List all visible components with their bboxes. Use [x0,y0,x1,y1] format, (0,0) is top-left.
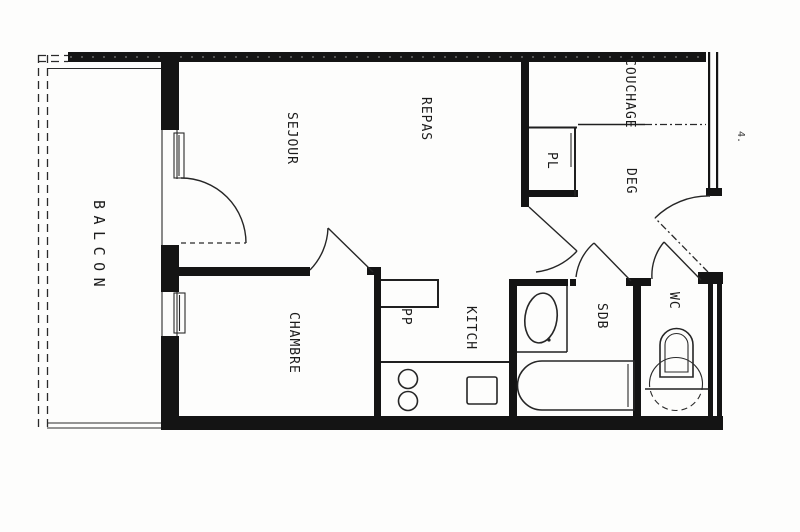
wall-right-upper-end-cap [706,188,722,196]
floor-plan-page: BALCON SEJOUR REPAS COUCHAGE PL DEG CHAM… [0,0,800,532]
wall-chambre-kitchen [374,267,381,422]
wc-door-swing-arc [652,242,664,279]
wall-right-lower-inner [717,282,722,422]
label-pp: PP [398,308,413,326]
sdb-fixtures [517,286,634,410]
kitchen-sink-bowl-2 [399,392,418,411]
wall-sdb-door-jamb [570,279,576,286]
wall-right-upper-outer-line [708,52,710,196]
label-repas: REPAS [418,97,433,141]
washbasin [522,291,561,345]
wall-sejour-chambre [178,267,310,276]
sdb-door-leaf [594,243,631,281]
wall-right-lower-outer [708,282,713,422]
sejour-deg-door-leaf [529,207,577,251]
toilet-bowl-bottom-arc [650,384,703,411]
wc-door-leaf [664,242,701,280]
label-pl: PL [544,152,559,170]
label-balcon: BALCON [90,200,108,293]
wall-left-upper [161,52,179,130]
label-wc: WC [666,292,681,310]
balcony-door-swing-arc [181,178,246,243]
bathtub [518,361,635,410]
entrance-door-swing-arc [655,196,710,218]
washbasin-drain [547,338,550,341]
wall-pl-bottom [521,190,578,197]
label-deg: DEG [623,168,638,194]
wall-sdb-top [509,279,568,286]
label-kitch: KITCH [463,306,478,350]
pp-unit [381,280,438,307]
label-chambre: CHAMBRE [286,312,301,374]
chambre-door-leaf [328,228,373,272]
wall-left-middle [161,245,179,292]
sdb-door-swing-arc [576,243,594,277]
toilet-tank-inner [665,334,688,373]
floor-plan-drawing: BALCON SEJOUR REPAS COUCHAGE PL DEG CHAM… [0,0,800,532]
kitchen-hob [467,377,497,404]
wall-left-lower [161,336,179,422]
sejour-deg-door-swing-arc [536,251,577,272]
label-sejour: SEJOUR [284,112,299,165]
interior-walls [178,62,651,422]
chambre-door-swing-arc [310,228,328,270]
kitchen-fixtures [381,280,509,411]
wc-fixtures [645,329,710,411]
kitchen-sink-bowl-1 [399,370,418,389]
wall-repas-couchage [521,62,529,207]
wall-sdb-left [509,279,517,420]
page-mark: 4. [735,131,746,143]
label-couchage: COUCHAGE [622,58,637,129]
left-wall-glazing [162,130,185,336]
entrance-door-leaf [655,218,708,272]
toilet-bowl-top-arc [650,358,703,385]
label-sdb: SDB [594,303,609,329]
wall-right-upper-inner-line [716,52,718,196]
